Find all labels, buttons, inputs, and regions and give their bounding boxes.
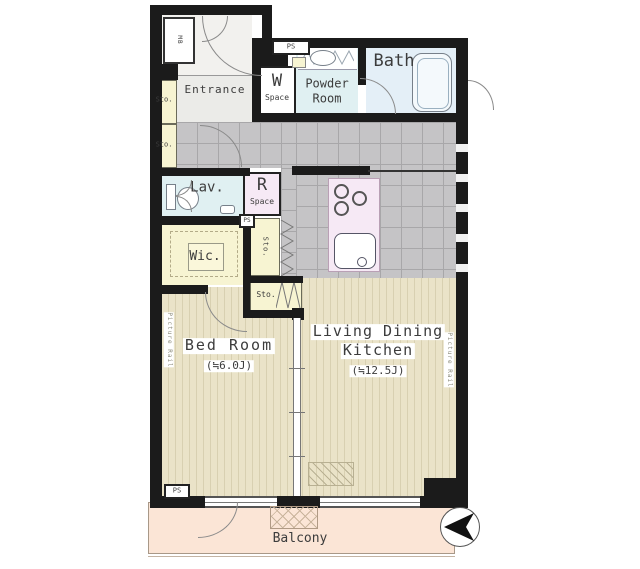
service-door-arc <box>468 80 494 110</box>
window-ldk <box>320 496 420 508</box>
sliding-door <box>293 318 301 496</box>
counter-open-line <box>368 170 456 172</box>
compass-north-icon <box>441 508 479 546</box>
sliding-door-tick <box>289 412 305 413</box>
kitchen-sink <box>334 233 376 269</box>
picture-rail-label-right: Picture Rail <box>444 332 454 387</box>
stove-burner-icon <box>334 184 349 199</box>
wall-under-powder <box>252 113 458 122</box>
w-space-label: Space <box>263 94 291 102</box>
storage-label: Sto. <box>154 141 175 148</box>
wall-right-lower <box>456 290 468 480</box>
wall-lav-top <box>150 168 250 176</box>
wall-right-upper <box>456 38 468 122</box>
folding-door-icon <box>276 281 301 309</box>
stove-burner-icon <box>352 191 367 206</box>
wall-top-left <box>150 5 272 15</box>
lav-label: Lav. <box>188 181 226 196</box>
balcony-label: Balcony <box>271 532 330 546</box>
wall-below-niche <box>152 64 178 80</box>
sliding-door-tick <box>289 456 305 457</box>
r-space-initial: R <box>255 177 269 195</box>
bedroom-label: Bed Room <box>183 338 275 354</box>
wall-wic-bottom <box>150 285 208 294</box>
floor-hatch <box>308 462 354 486</box>
r-space-label: Space <box>248 198 276 206</box>
wall-lav-bottom <box>150 216 248 225</box>
toilet-tank <box>166 184 176 210</box>
wic-label: Wic. <box>187 250 222 264</box>
balcony-outer-line <box>148 556 455 557</box>
wall-right-windowed <box>456 122 468 290</box>
w-space-initial: W <box>270 73 284 91</box>
bathtub-inner <box>417 58 449 109</box>
balcony-hatch <box>270 506 318 529</box>
sink-drain-icon <box>357 257 367 267</box>
ps-label-top: PS <box>285 43 297 50</box>
floor-plan: Entrance W Space Powder Room Bath Lav. R… <box>0 0 640 569</box>
ps-label-middle: PS <box>241 218 252 224</box>
ldk-size: (≒12.5J) <box>350 365 407 377</box>
ldk-label-1: Living Dining <box>311 324 445 340</box>
vanity-basin <box>310 50 336 66</box>
genkan-step <box>176 75 252 123</box>
bedroom-size: (≒6.0J) <box>204 360 254 372</box>
storage-label: Sto. <box>254 291 277 299</box>
compass <box>440 507 480 547</box>
folding-door-icon <box>280 220 295 276</box>
entrance-label: Entrance <box>183 84 248 96</box>
small-yellow-box <box>292 57 306 68</box>
wall-kitchen-stub <box>292 166 370 175</box>
powder-room-label-1: Powder <box>303 78 350 91</box>
meter-box-label: MB <box>174 35 184 44</box>
picture-rail-label-left: Picture Rail <box>164 312 174 367</box>
storage-label: Sto. <box>154 96 175 103</box>
ldk-label-2: Kitchen <box>341 343 415 359</box>
wall-left <box>150 5 162 508</box>
sliding-door-tick <box>289 368 305 369</box>
wall-sto-top <box>243 276 303 283</box>
bathtub <box>412 53 452 112</box>
stove-burner-icon <box>334 201 349 216</box>
ps-label-bottom: PS <box>171 487 183 494</box>
powder-room-label-2: Room <box>311 93 344 106</box>
lav-basin <box>220 205 235 214</box>
bath-label: Bath <box>372 53 417 71</box>
storage-label: Sto. <box>259 237 270 258</box>
